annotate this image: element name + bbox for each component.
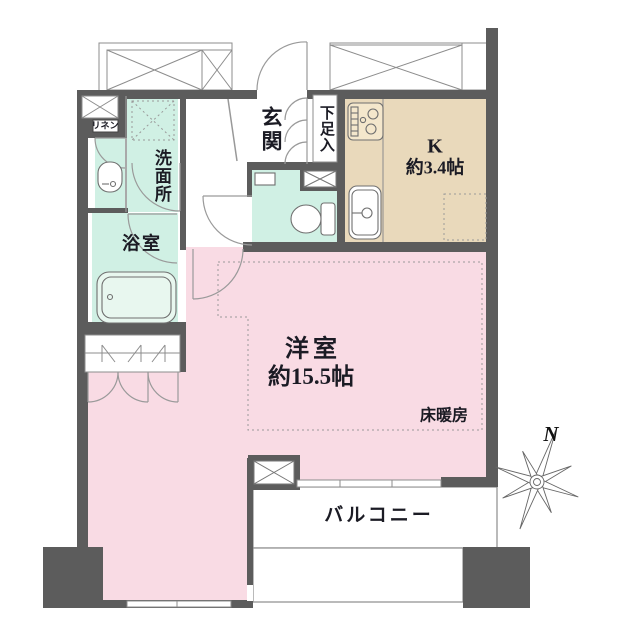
compass-north-label: N (543, 423, 558, 445)
balcony-label: バルコニー (324, 506, 434, 526)
floor-plan: 玄関 下足入 K 約3.4帖 洗面所 リネン 浴室 洋室 約15.5帖 床暖房 … (0, 0, 640, 640)
entrance-door (257, 42, 307, 90)
kitchen-size-label: 約3.4帖 (406, 159, 465, 178)
linen-label: リネン (91, 121, 118, 130)
floorplan-graphics (0, 0, 640, 640)
genkan-label: 玄関 (260, 106, 282, 154)
stove-icon (348, 103, 383, 140)
shoe-cabinet-doors (285, 98, 307, 164)
compass-star (496, 430, 579, 529)
exterior-ducts (99, 43, 493, 91)
washbasin-icon (98, 162, 122, 192)
kitchen-sink-icon (349, 186, 381, 239)
kitchen-label: K (427, 137, 443, 158)
toilet-door (203, 196, 252, 245)
living-room-label: 洋室 (285, 337, 341, 362)
washroom-label: 洗面所 (152, 149, 170, 203)
floor-heating-label: 床暖房 (420, 409, 468, 426)
bathroom-label: 浴室 (122, 235, 162, 254)
genkan-step-line (228, 99, 237, 161)
living-size-label: 約15.5帖 (268, 365, 354, 389)
shoe-storage-label: 下足入 (317, 105, 333, 153)
bathtub-icon (97, 272, 176, 323)
